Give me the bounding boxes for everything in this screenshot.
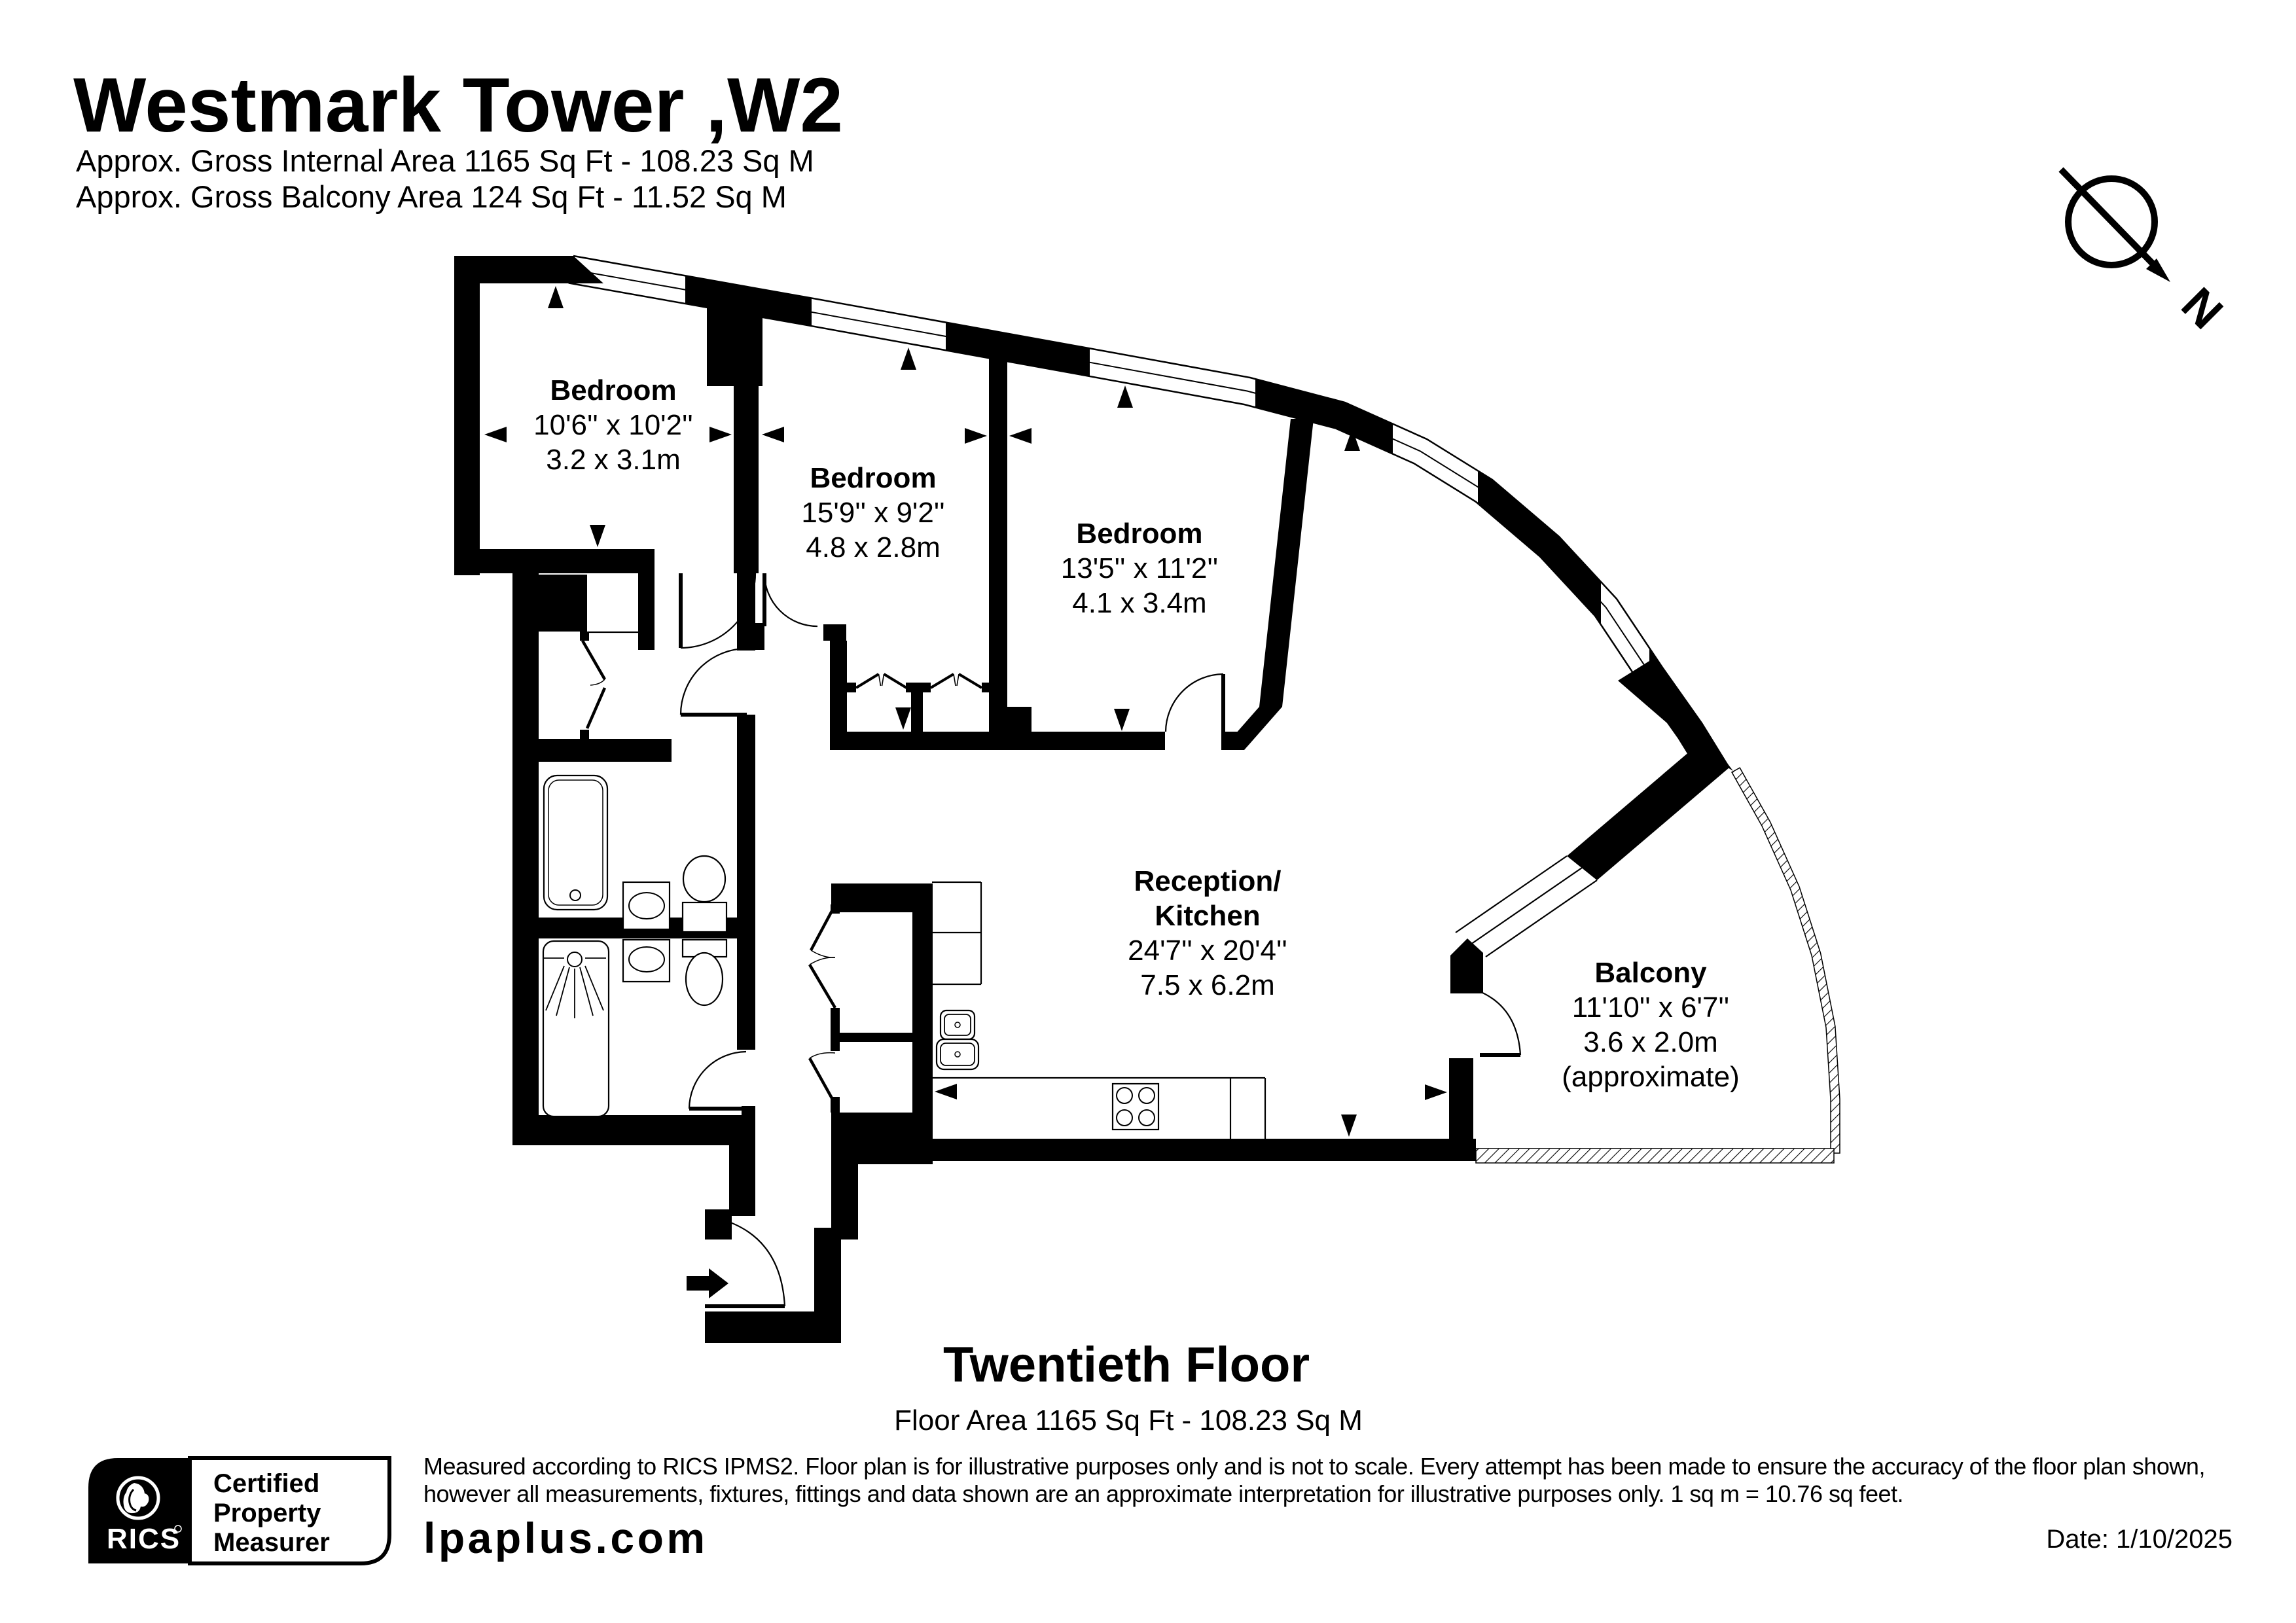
svg-text:N: N <box>2172 278 2233 339</box>
svg-text:RICS: RICS <box>107 1523 181 1555</box>
